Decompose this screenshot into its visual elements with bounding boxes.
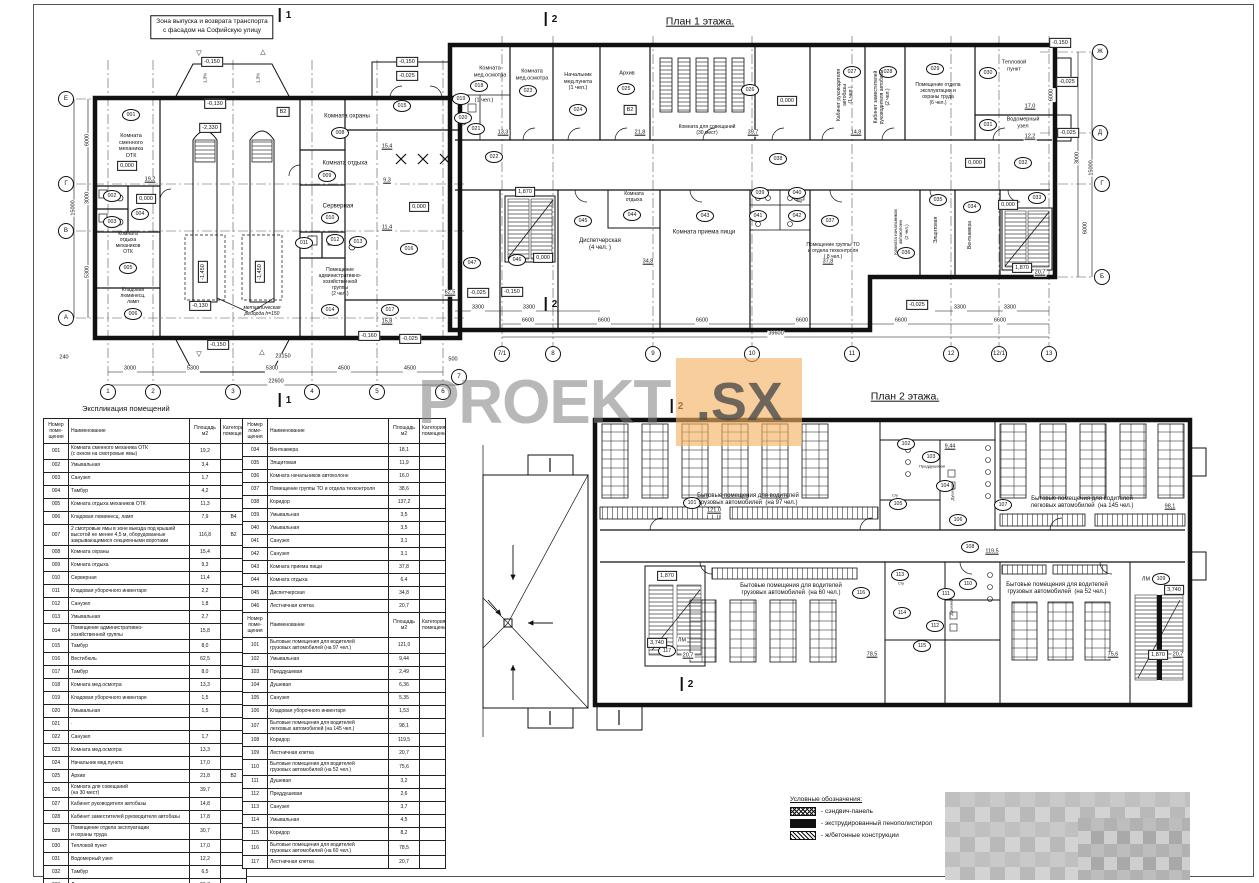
room-label: Комната отдыха (323, 160, 368, 167)
room-name: Умывальная (268, 814, 389, 827)
room-label: С/у (898, 582, 904, 587)
legend-swatch-hatch-icon (790, 831, 816, 840)
room-number: 016 (44, 652, 69, 665)
room-name: Бытовые помещения для водителей легковых… (268, 718, 389, 734)
table-row: 046Лестничная клетка20,7 (243, 600, 446, 613)
table-row: 027Кабинет руководителя автобазы14,8 (44, 798, 247, 811)
table-row: 016Вестибюль62,5 (44, 652, 247, 665)
room-number-bubble: 018 (470, 80, 488, 92)
legend-swatch-crosshatch-icon (790, 807, 816, 816)
room-number-bubble: 107 (994, 499, 1012, 511)
room-number: 108 (243, 734, 268, 747)
table-row: 117Лестничная клетка20,7 (243, 856, 446, 869)
room-area: 75,6 (389, 760, 420, 776)
table-row: 022Санузел1,7 (44, 730, 247, 743)
dimension-label: 4500 (403, 366, 417, 373)
room-category (420, 561, 446, 574)
room-name: Умывальная (69, 611, 190, 624)
table-row: 040Умывальная3,5 (243, 522, 446, 535)
room-label: Комната охраны (324, 113, 370, 120)
room-number: 013 (44, 611, 69, 624)
elevation-mark: 0,000 (533, 253, 553, 263)
room-number-bubble: 040 (788, 187, 806, 199)
room-number: 033 (44, 878, 69, 883)
room-number-bubble: 023 (519, 85, 537, 97)
elevation-mark: 0,000 (777, 96, 797, 106)
room-area: 3,5 (389, 522, 420, 535)
room-number: 019 (44, 691, 69, 704)
dimension-label: 6600 (993, 318, 1007, 325)
room-category (420, 548, 446, 561)
room-area: 2,49 (389, 666, 420, 679)
room-number-bubble: 005 (119, 262, 137, 274)
room-number-bubble: 029 (926, 63, 944, 75)
room-category (420, 692, 446, 705)
table-row: 015Тамбур8,0 (44, 639, 247, 652)
dimension-label: 19,2 (144, 177, 157, 184)
room-number: 117 (243, 856, 268, 869)
room-name: Преддушевая (268, 666, 389, 679)
plan1-title: План 1 этажа. (666, 16, 734, 29)
room-number: 031 (44, 852, 69, 865)
schedule-table: Номер поме- щенияНаименованиеПлощадь м2К… (43, 418, 247, 883)
grid-axis-bubble: Д (1092, 125, 1108, 141)
room-area: 11,4 (190, 572, 221, 585)
room-area: 3,5 (389, 509, 420, 522)
room-label: Архив (619, 71, 634, 78)
room-name: Помещение административно- хозяйственной… (69, 624, 190, 640)
room-name: Архив (69, 769, 190, 782)
table-row: 003Санузел1,7 (44, 472, 247, 485)
grid-axis-bubble: 1 (100, 384, 116, 400)
room-label: Серверная (323, 203, 354, 210)
room-category (420, 679, 446, 692)
room-category (420, 840, 446, 856)
room-category (420, 814, 446, 827)
grid-axis-bubble: 7 (451, 369, 467, 385)
room-name: Душевая (268, 679, 389, 692)
elevation-mark: 3,740 (1164, 585, 1184, 595)
table-row: 112Преддушевая2,6 (243, 788, 446, 801)
room-number: 022 (44, 730, 69, 743)
dimension-label: 15000 (1089, 159, 1096, 176)
section-mark: 1 (279, 8, 292, 22)
room-category (420, 600, 446, 613)
elevation-mark: -0,150 (1049, 38, 1071, 48)
section-mark: 2 (545, 297, 558, 311)
room-category (420, 801, 446, 814)
room-name: Преддушевая (268, 788, 389, 801)
room-area: 7,9 (190, 511, 221, 524)
room-number-bubble: 047 (463, 257, 481, 269)
room-name: Диспетчерская (268, 587, 389, 600)
room-area: 21,8 (190, 769, 221, 782)
room-category (420, 760, 446, 776)
room-label: Водомерный узел (1007, 116, 1040, 129)
room-area: 3,7 (389, 801, 420, 814)
room-name: Лестничная клетка (268, 600, 389, 613)
room-number: 115 (243, 827, 268, 840)
room-category (420, 457, 446, 470)
room-name: Кладовая уборочного инвентаря (69, 585, 190, 598)
room-name: Санузел (69, 598, 190, 611)
room-category (420, 788, 446, 801)
room-area: 20,7 (389, 856, 420, 869)
column-header: Наименование (69, 419, 190, 444)
room-number: 018 (44, 678, 69, 691)
room-label: (1 чел.) (475, 98, 494, 105)
grid-axis-bubble: 12 (943, 346, 959, 362)
room-name: Бытовые помещения для водителей грузовых… (268, 638, 389, 654)
room-number-bubble: 105 (889, 498, 907, 510)
elevation-mark: В2 (624, 105, 637, 115)
room-category (420, 574, 446, 587)
dimension-label: 3000 (1075, 151, 1082, 165)
room-number-bubble: 012 (326, 234, 344, 246)
elevation-mark: -1,450 (255, 261, 265, 283)
room-number-bubble: 009 (318, 170, 336, 182)
room-number: 114 (243, 814, 268, 827)
room-label: Помещение отдела эксплуатации и охраны т… (915, 82, 960, 106)
grid-axis-bubble: 4 (304, 384, 320, 400)
room-category (420, 638, 446, 654)
grid-axis-bubble: 5 (369, 384, 385, 400)
dimension-label: 20,7 (1034, 270, 1047, 277)
room-number: 101 (243, 638, 268, 654)
dimension-label: 6600 (795, 318, 809, 325)
dimension-label: ЛМ (677, 638, 687, 645)
room-area: 38,6 (389, 483, 420, 496)
room-number: 116 (243, 840, 268, 856)
table-row: 006Кладовая люминесц. ламп7,9В4 (44, 511, 247, 524)
dimension-label: 12,2 (1024, 134, 1037, 141)
grid-axis-bubble: Г (58, 176, 74, 192)
room-number: 040 (243, 522, 268, 535)
room-name: Тамбур (69, 639, 190, 652)
table-row: 009Комната отдыха9,3 (44, 559, 247, 572)
section-mark: 2 (545, 12, 558, 26)
room-area: 15,4 (190, 546, 221, 559)
room-area: 1,53 (389, 705, 420, 718)
room-number-bubble: 039 (751, 187, 769, 199)
room-name: Лестничная клетка (268, 747, 389, 760)
grid-axis-bubble: Ж (1092, 44, 1108, 60)
room-number: 111 (243, 775, 268, 788)
room-area: 39,7 (190, 782, 221, 798)
room-name: Лестничная клетка (69, 878, 190, 883)
room-area: 8,0 (190, 665, 221, 678)
elevation-mark: 0,000 (117, 161, 137, 171)
dimension-label: 98,1 (1164, 504, 1177, 511)
room-name: 2 смотровые ямы в зоне выезда под крышей… (69, 524, 190, 546)
legend: Условные обозначения: - сэндвич-панель- … (790, 796, 932, 840)
dimension-label: 6600 (597, 318, 611, 325)
dimension-label: 3300 (1003, 305, 1017, 312)
table-row: 014Помещение административно- хозяйствен… (44, 624, 247, 640)
legend-item: - сэндвич-панель (790, 807, 932, 816)
room-area: 1,7 (190, 730, 221, 743)
room-label: Венткамера (967, 221, 973, 249)
room-area: 1,7 (190, 472, 221, 485)
elevation-mark: -0,025 (396, 71, 418, 81)
room-name: Умывальная (268, 509, 389, 522)
room-label: Бытовые помещения для водителей грузовых… (1006, 582, 1108, 596)
room-number: 107 (243, 718, 268, 734)
room-area: 6,4 (389, 574, 420, 587)
room-name: Помещение отдела эксплуатации и охраны т… (69, 824, 190, 840)
dimension-label: 15000 (71, 199, 78, 216)
dimension-label: △ (259, 49, 266, 57)
room-name: Водомерный узел (69, 852, 190, 865)
room-name: Комната начальников автоколонн (268, 470, 389, 483)
room-area: 20,7 (190, 878, 221, 883)
room-label: Комната начальников автоколонн (2 чел.) (893, 209, 909, 255)
table-row: 021· (44, 717, 247, 730)
room-category (420, 775, 446, 788)
room-number-bubble: 026 (741, 84, 759, 96)
table-row: 001Комната сменного механика ОТК (с окно… (44, 444, 247, 460)
dimension-label: 20,7 (1172, 652, 1185, 659)
room-area: 12,2 (190, 852, 221, 865)
table-row: 109Лестничная клетка20,7 (243, 747, 446, 760)
room-number: 023 (44, 743, 69, 756)
room-number-bubble: 108 (961, 541, 979, 553)
room-name: Комната охраны (69, 546, 190, 559)
table-row: 023Комната мед.осмотра13,3 (44, 743, 247, 756)
dimension-label: 6600 (695, 318, 709, 325)
room-number: 039 (243, 509, 268, 522)
room-number-bubble: 002 (103, 190, 121, 202)
table-row: 039Умывальная3,5 (243, 509, 446, 522)
legend-label: - ж/бетонные конструкции (821, 832, 899, 839)
dimension-label: 15,8 (381, 319, 394, 326)
room-name: Бытовые помещения для водителей грузовых… (268, 840, 389, 856)
room-name: Комната сменного механика ОТК (с окном н… (69, 444, 190, 460)
room-name: Умывальная (268, 522, 389, 535)
room-number-bubble: 017 (381, 304, 399, 316)
dimension-label: 3000 (123, 366, 137, 373)
room-area: 6,5 (190, 865, 221, 878)
room-number: 024 (44, 756, 69, 769)
room-name: Санузел (268, 535, 389, 548)
room-number-bubble: 109 (1152, 573, 1170, 585)
legend-items: - сэндвич-панель- экструдированный пеноп… (790, 807, 932, 840)
table-row: 034Венткамера18,1 (243, 444, 446, 457)
room-category (420, 496, 446, 509)
room-number-bubble: 021 (467, 123, 485, 135)
room-number-bubble: 115 (913, 640, 931, 652)
dimension-label: 22600 (267, 379, 284, 386)
room-category (221, 878, 247, 883)
grid-axis-bubble: В (58, 223, 74, 239)
elevation-mark: 1,870 (515, 187, 535, 197)
room-area: 2,2 (190, 585, 221, 598)
dimension-label: 6600 (521, 318, 535, 325)
room-number: 109 (243, 747, 268, 760)
elevation-mark: -0,160 (358, 331, 380, 341)
dimension-label: 5300 (265, 366, 279, 373)
elevation-mark: -0,150 (501, 287, 523, 297)
dimension-label: 21,8 (634, 130, 647, 137)
room-number: 021 (44, 717, 69, 730)
room-area: 13,3 (190, 743, 221, 756)
table-row: 111Душевая3,2 (243, 775, 446, 788)
room-number: 025 (44, 769, 69, 782)
table-row: 032Тамбур6,5 (44, 865, 247, 878)
table-row: 116Бытовые помещения для водителей грузо… (243, 840, 446, 856)
elevation-mark: -0,150 (207, 340, 229, 350)
room-area: 78,5 (389, 840, 420, 856)
room-number: 045 (243, 587, 268, 600)
room-category (420, 718, 446, 734)
room-label: Комната отдыха механиков ОТК (116, 231, 141, 255)
schedule-title: Экспликация помещений (82, 404, 170, 413)
table-row: 110Бытовые помещения для водителей грузо… (243, 760, 446, 776)
grid-axis-bubble: 2 (145, 384, 161, 400)
room-name: Венткамера (268, 444, 389, 457)
room-number-bubble: 044 (623, 209, 641, 221)
room-area: 20,7 (389, 600, 420, 613)
room-number-bubble: 024 (569, 104, 587, 116)
table-row: 108Коридор119,5 (243, 734, 446, 747)
room-label: Бытовые помещения для водителей легковых… (1031, 496, 1134, 510)
dimension-label: 3300 (471, 305, 485, 312)
table-row: 044Комната отдыха6,4 (243, 574, 446, 587)
room-name: Лестничная клетка (268, 856, 389, 869)
room-number: 034 (243, 444, 268, 457)
drawing-sheet: План 1 этажа.Зона выпуска и возврата тра… (0, 0, 1259, 883)
room-number: 041 (243, 535, 268, 548)
table-row: 038Коридор137,2 (243, 496, 446, 509)
dimension-label: 34,8 (642, 259, 655, 266)
room-number-bubble: 011 (295, 237, 313, 249)
room-name: Умывальная (69, 459, 190, 472)
room-area: 4,2 (190, 485, 221, 498)
room-number-bubble: 010 (321, 212, 339, 224)
room-name: Коридор (268, 827, 389, 840)
legend-item: - экструдированный пенополистирол (790, 819, 932, 828)
column-header: Площадь м2 (389, 613, 420, 638)
room-name: Умывальная (268, 653, 389, 666)
room-name: Санузел (268, 692, 389, 705)
room-number: 038 (243, 496, 268, 509)
elevation-mark: 3,740 (647, 638, 667, 648)
room-number: 046 (243, 600, 268, 613)
room-category (420, 705, 446, 718)
room-label: металлическая реборда h=150 (243, 305, 280, 317)
table-row: 011Кладовая уборочного инвентаря2,2 (44, 585, 247, 598)
room-name: Кладовая люминесц. ламп (69, 511, 190, 524)
elevation-mark: -1,450 (198, 261, 208, 283)
room-number-bubble: 016 (400, 243, 418, 255)
room-name: Кабинет руководителя автобазы (69, 798, 190, 811)
section-mark: 2 (671, 399, 684, 413)
room-number-bubble: 004 (131, 208, 149, 220)
room-number-bubble: 106 (949, 514, 967, 526)
room-number: 010 (44, 572, 69, 585)
room-number: 015 (44, 639, 69, 652)
room-number: 001 (44, 444, 69, 460)
room-number: 103 (243, 666, 268, 679)
room-category (420, 444, 446, 457)
grid-axis-bubble: 10 (744, 346, 760, 362)
dimension-label: 1,3% (255, 72, 260, 84)
legend-label: - экструдированный пенополистирол (821, 820, 932, 827)
room-name: Комната отдыха (69, 559, 190, 572)
room-area: 121,0 (389, 638, 420, 654)
section-mark: 2 (681, 677, 694, 691)
room-number: 105 (243, 692, 268, 705)
room-number-bubble: 019 (452, 93, 470, 105)
room-area: 20,7 (389, 747, 420, 760)
room-area: 16,0 (389, 470, 420, 483)
room-area: 13,3 (190, 678, 221, 691)
table-row: 019Кладовая уборочного инвентаря1,5 (44, 691, 247, 704)
room-number: 035 (243, 457, 268, 470)
table-row: 037Помещение группы ТО и отдела техконтр… (243, 483, 446, 496)
room-area: 137,2 (389, 496, 420, 509)
room-number-bubble: 110 (959, 578, 977, 590)
column-header: Категория помещения (420, 613, 446, 638)
room-area: 17,8 (190, 811, 221, 824)
room-number: 043 (243, 561, 268, 574)
room-area: 30,7 (190, 824, 221, 840)
elevation-mark: 1,870 (1012, 263, 1032, 273)
elevation-mark: 0,000 (965, 158, 985, 168)
column-header: Номер поме- щения (243, 613, 268, 638)
room-label: Комната отдыха (624, 191, 644, 203)
room-number: 004 (44, 485, 69, 498)
room-category (420, 666, 446, 679)
room-name: Санузел (69, 472, 190, 485)
room-area (190, 717, 221, 730)
room-number-bubble: 042 (788, 210, 806, 222)
room-number: 005 (44, 498, 69, 511)
room-number-bubble: 020 (454, 112, 472, 124)
room-name: Тамбур (69, 485, 190, 498)
room-number-bubble: 022 (485, 151, 503, 163)
room-label: Элщитовая (933, 217, 939, 243)
room-area: 9,3 (190, 559, 221, 572)
room-name: Комната отдыха (268, 574, 389, 587)
elevation-mark: -0,025 (399, 334, 421, 344)
room-number: 009 (44, 559, 69, 572)
room-category (420, 734, 446, 747)
table-row: 107Бытовые помещения для водителей легко… (243, 718, 446, 734)
table-row: 002Умывальная3,4 (44, 459, 247, 472)
room-label: Комната сменного механика ОТК (119, 133, 143, 159)
dimension-label: 119,5 (984, 549, 999, 556)
table-row: 010Серверная11,4 (44, 572, 247, 585)
room-number: 027 (44, 798, 69, 811)
dimension-label: 78,5 (866, 652, 879, 659)
room-number-bubble: 034 (963, 201, 981, 213)
room-number-bubble: 037 (821, 215, 839, 227)
dimension-label: 20,7 (682, 653, 695, 660)
column-header: Площадь м2 (190, 419, 221, 444)
room-name: Вестибюль (69, 652, 190, 665)
room-name: Серверная (69, 572, 190, 585)
room-area: 62,5 (190, 652, 221, 665)
dimension-label: 240 (58, 355, 69, 362)
dimension-label: 39,7 (747, 130, 760, 137)
room-number-bubble: 102 (897, 438, 915, 450)
elevation-mark: 1,870 (1148, 650, 1168, 660)
table-row: 042Санузел3,1 (243, 548, 446, 561)
table-row: 004Тамбур4,2 (44, 485, 247, 498)
dimension-label: 6000 (85, 133, 92, 147)
dimension-label: 4500 (337, 366, 351, 373)
